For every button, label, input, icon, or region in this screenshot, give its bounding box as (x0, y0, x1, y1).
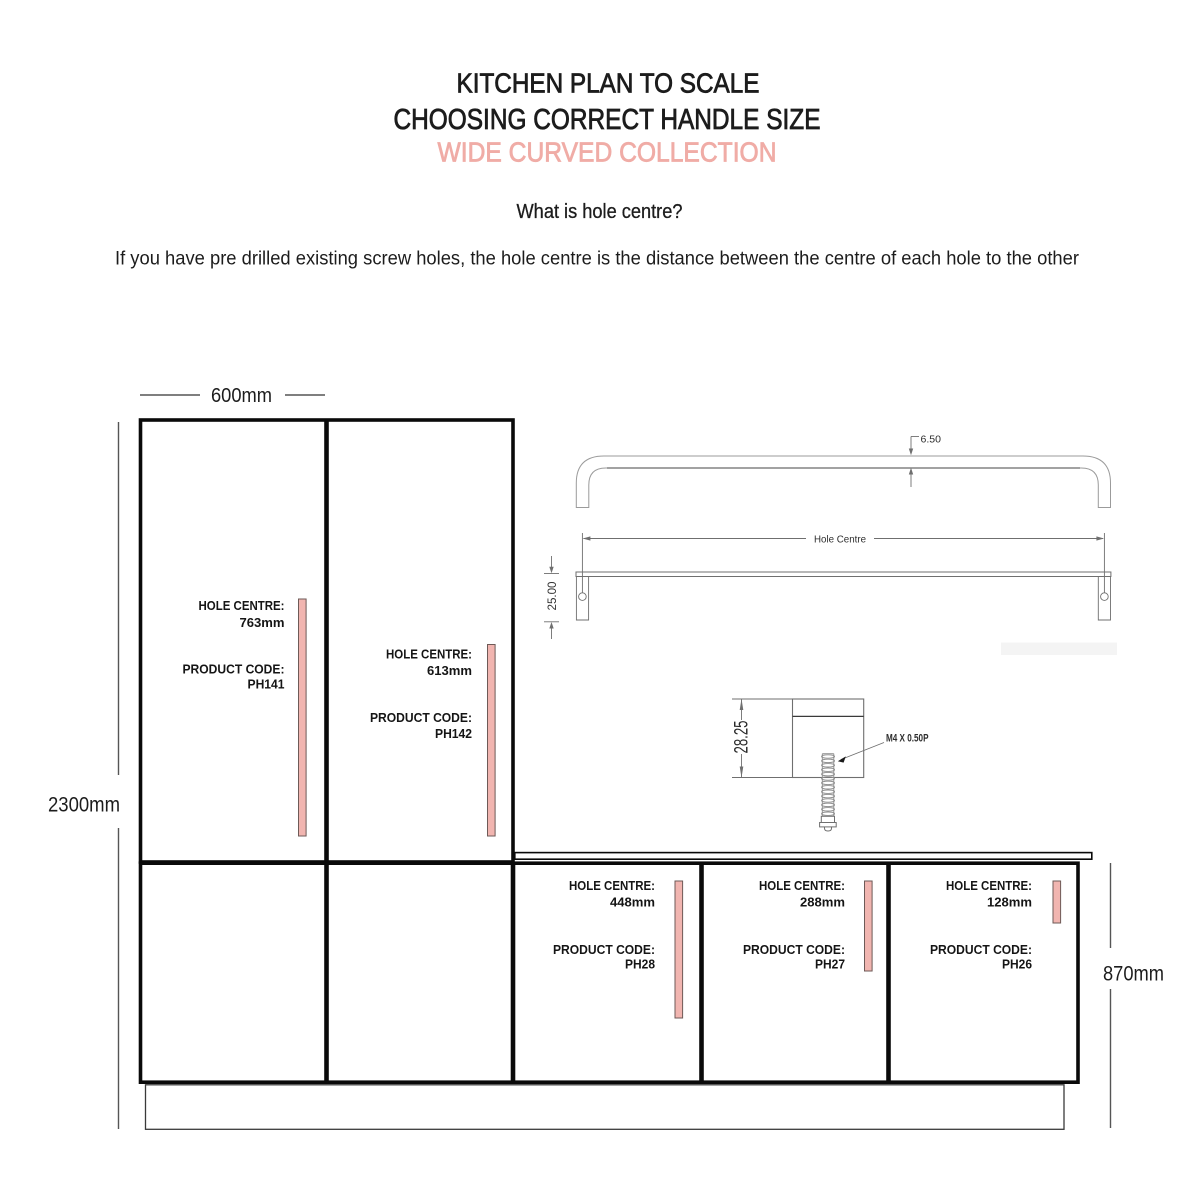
svg-text:763mm: 763mm (240, 615, 285, 630)
svg-text:25.00: 25.00 (547, 582, 559, 611)
svg-text:PH28: PH28 (625, 957, 655, 972)
svg-text:6.50: 6.50 (921, 434, 942, 446)
svg-text:2300mm: 2300mm (48, 793, 120, 817)
svg-text:613mm: 613mm (427, 663, 472, 678)
svg-text:CHOOSING CORRECT HANDLE SIZE: CHOOSING CORRECT HANDLE SIZE (394, 104, 821, 136)
svg-text:PRODUCT CODE:: PRODUCT CODE: (743, 942, 845, 957)
svg-text:KITCHEN PLAN TO SCALE: KITCHEN PLAN TO SCALE (457, 68, 760, 99)
svg-text:PRODUCT CODE:: PRODUCT CODE: (183, 662, 285, 677)
svg-text:HOLE CENTRE:: HOLE CENTRE: (386, 647, 472, 662)
svg-text:288mm: 288mm (800, 895, 845, 910)
svg-text:HOLE CENTRE:: HOLE CENTRE: (569, 878, 655, 893)
svg-text:HOLE CENTRE:: HOLE CENTRE: (759, 878, 845, 893)
svg-text:128mm: 128mm (987, 895, 1032, 910)
svg-text:28.25: 28.25 (732, 721, 753, 754)
svg-text:PRODUCT CODE:: PRODUCT CODE: (930, 942, 1032, 957)
svg-text:PH142: PH142 (435, 726, 472, 741)
svg-text:HOLE CENTRE:: HOLE CENTRE: (199, 598, 285, 613)
svg-text:PRODUCT CODE:: PRODUCT CODE: (370, 710, 472, 725)
svg-text:PH26: PH26 (1002, 957, 1032, 972)
svg-text:PRODUCT CODE:: PRODUCT CODE: (553, 942, 655, 957)
svg-text:WIDE CURVED COLLECTION: WIDE CURVED COLLECTION (438, 137, 777, 168)
svg-text:What is hole centre?: What is hole centre? (517, 201, 683, 223)
svg-text:HOLE CENTRE:: HOLE CENTRE: (946, 878, 1032, 893)
svg-text:If you have pre drilled existi: If you have pre drilled existing screw h… (115, 248, 1079, 270)
svg-text:PH141: PH141 (248, 677, 285, 692)
svg-text:M4 X 0.50P: M4 X 0.50P (886, 733, 929, 745)
svg-text:PH27: PH27 (815, 957, 845, 972)
svg-text:600mm: 600mm (211, 385, 272, 407)
svg-text:448mm: 448mm (610, 895, 655, 910)
svg-text:Hole Centre: Hole Centre (814, 534, 866, 546)
svg-text:870mm: 870mm (1103, 962, 1164, 986)
